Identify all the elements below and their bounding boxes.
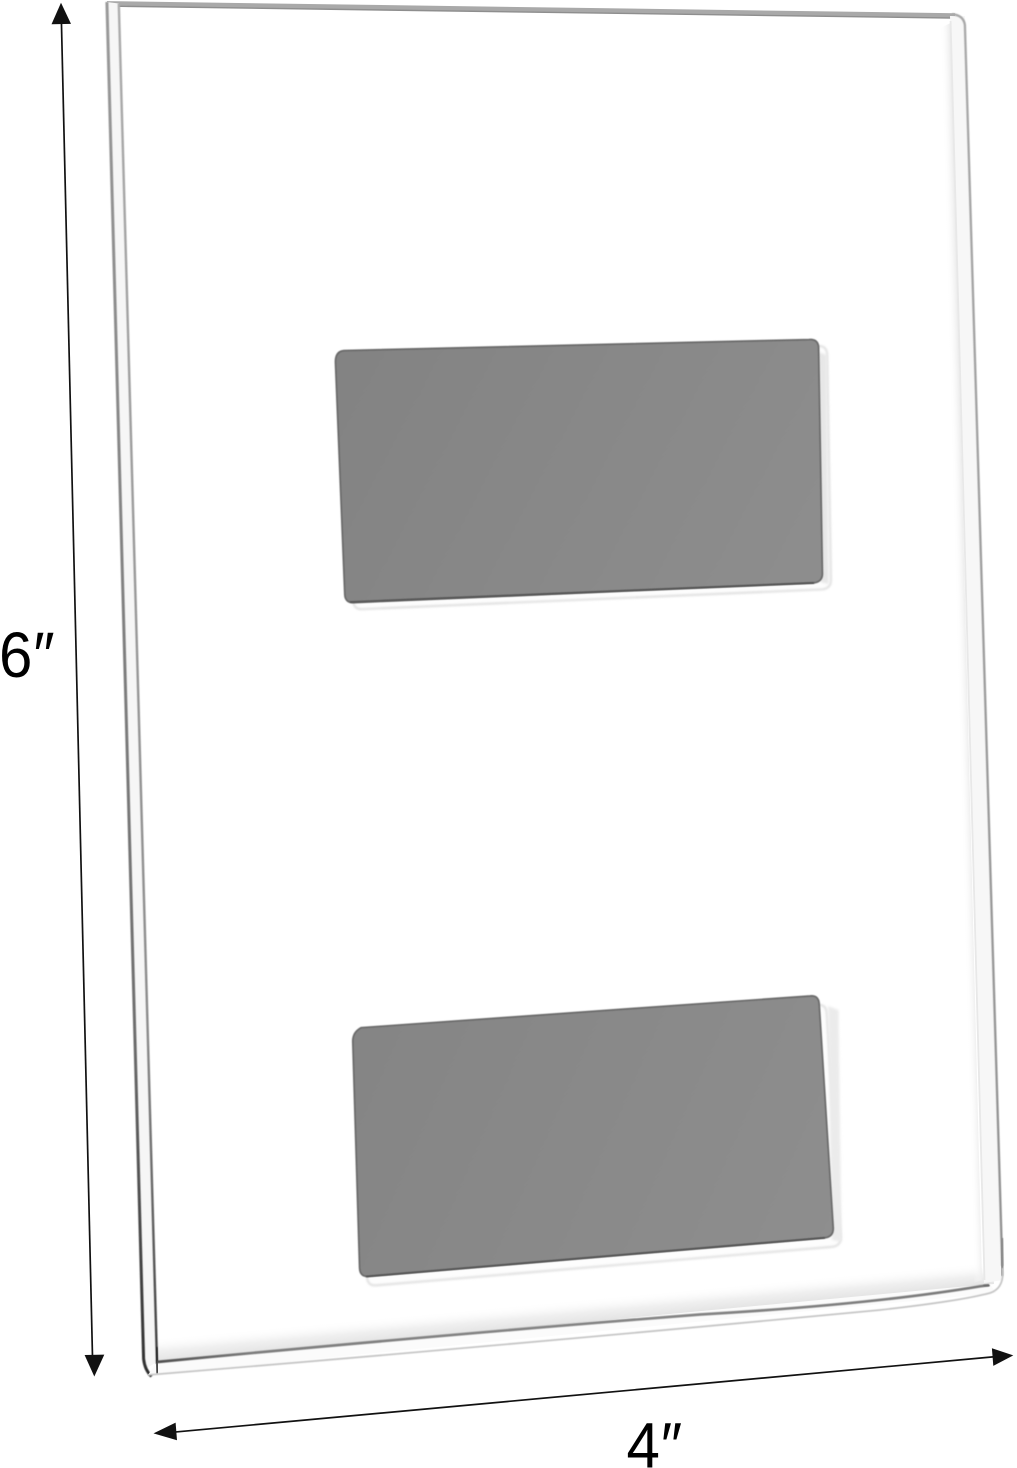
svg-text:6″: 6″ — [0, 620, 55, 691]
svg-text:4″: 4″ — [627, 1411, 683, 1468]
